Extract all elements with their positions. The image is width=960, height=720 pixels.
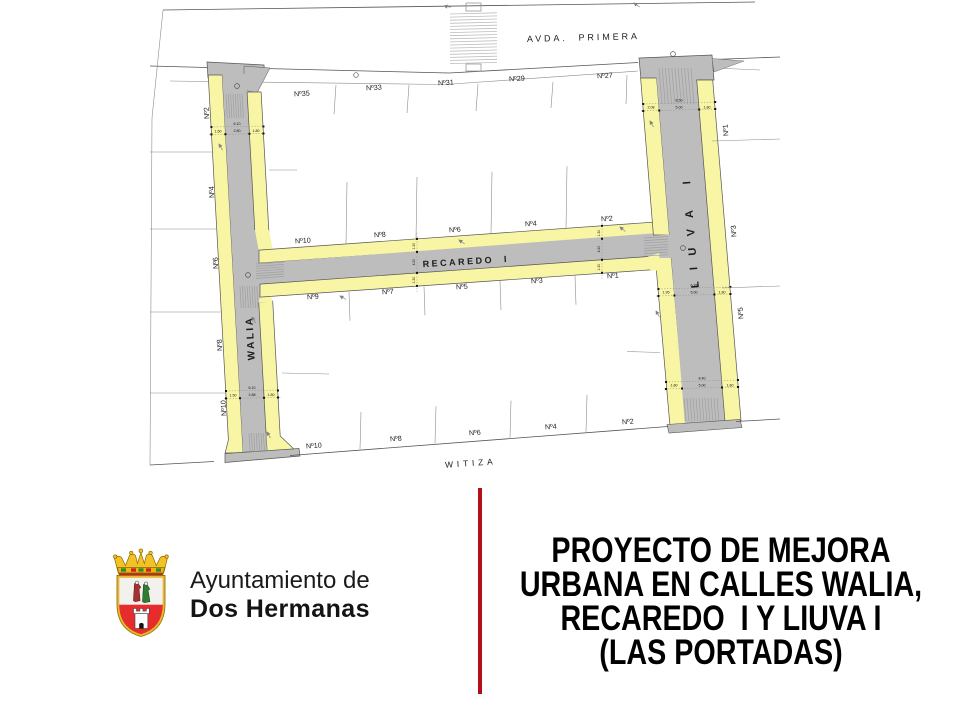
svg-text:6.10: 6.10 <box>249 386 256 390</box>
svg-text:4.20: 4.20 <box>597 246 601 253</box>
svg-text:Nº10: Nº10 <box>306 440 322 450</box>
svg-text:1.80: 1.80 <box>719 291 726 295</box>
svg-text:1.80: 1.80 <box>727 384 734 388</box>
svg-text:1.50: 1.50 <box>215 130 222 134</box>
svg-text:Nº8: Nº8 <box>215 339 225 351</box>
svg-text:1.80: 1.80 <box>704 106 711 110</box>
svg-text:Nº2: Nº2 <box>202 107 212 119</box>
svg-text:2.08: 2.08 <box>648 106 655 110</box>
svg-text:1.80: 1.80 <box>253 129 260 133</box>
svg-text:Nº3: Nº3 <box>531 276 543 286</box>
svg-text:2.80: 2.80 <box>234 129 241 133</box>
svg-text:Nº8: Nº8 <box>390 434 402 444</box>
svg-text:4.20: 4.20 <box>412 259 416 266</box>
svg-text:Nº2: Nº2 <box>622 417 634 427</box>
svg-text:1.30: 1.30 <box>412 243 416 250</box>
svg-text:5.00: 5.00 <box>691 291 698 295</box>
svg-text:1.30: 1.30 <box>597 230 601 237</box>
svg-text:5.00: 5.00 <box>699 384 706 388</box>
svg-text:6.10: 6.10 <box>234 122 241 126</box>
svg-text:AVDA. PRIMERA: AVDA. PRIMERA <box>527 31 640 44</box>
svg-text:8.50: 8.50 <box>676 99 683 103</box>
svg-text:Nº8: Nº8 <box>374 230 386 240</box>
svg-text:8.40: 8.40 <box>699 377 706 381</box>
svg-text:1.30: 1.30 <box>412 277 416 284</box>
svg-text:WITIZA: WITIZA <box>445 456 497 470</box>
svg-text:Nº5: Nº5 <box>456 282 468 292</box>
svg-text:2.88: 2.88 <box>249 393 256 397</box>
svg-text:Nº6: Nº6 <box>211 257 221 269</box>
svg-text:1.80: 1.80 <box>268 393 275 397</box>
svg-text:1.80: 1.80 <box>671 384 678 388</box>
svg-text:1.95: 1.95 <box>663 291 670 295</box>
svg-text:Nº4: Nº4 <box>525 219 537 229</box>
svg-text:1.50: 1.50 <box>230 394 237 398</box>
svg-text:Nº1: Nº1 <box>721 124 731 136</box>
svg-text:Nº4: Nº4 <box>207 186 217 198</box>
svg-text:Nº9: Nº9 <box>307 292 319 302</box>
svg-text:Nº10: Nº10 <box>219 400 229 416</box>
svg-text:5.00: 5.00 <box>676 106 683 110</box>
svg-text:Nº35: Nº35 <box>294 89 310 99</box>
svg-text:1.30: 1.30 <box>597 264 601 271</box>
svg-text:6.75: 6.75 <box>691 284 698 288</box>
svg-text:Nº33: Nº33 <box>366 83 382 93</box>
svg-text:Nº7: Nº7 <box>382 287 394 297</box>
svg-text:Nº10: Nº10 <box>295 236 311 246</box>
svg-text:Nº31: Nº31 <box>438 78 454 88</box>
svg-text:Nº6: Nº6 <box>469 428 481 438</box>
svg-text:Nº2: Nº2 <box>601 214 613 224</box>
svg-text:Nº3: Nº3 <box>729 225 739 237</box>
svg-text:Nº27: Nº27 <box>597 71 613 81</box>
svg-text:Nº6: Nº6 <box>449 225 461 235</box>
svg-text:Nº1: Nº1 <box>607 271 619 281</box>
svg-text:Nº29: Nº29 <box>509 74 525 84</box>
svg-text:Nº5: Nº5 <box>736 307 746 319</box>
svg-text:Nº4: Nº4 <box>545 422 557 432</box>
